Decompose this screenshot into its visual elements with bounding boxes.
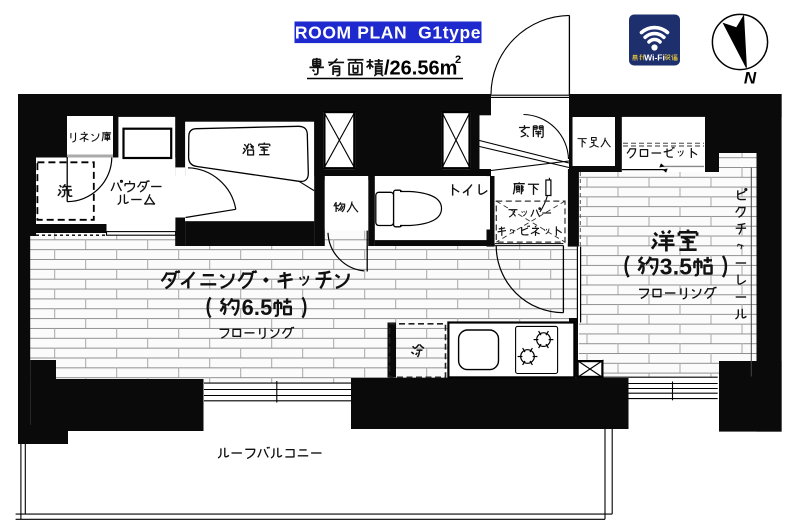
svg-text:5: 5	[679, 253, 692, 279]
svg-text:ROOM PLAN G1type: ROOM PLAN G1type	[295, 22, 481, 42]
svg-text:2: 2	[455, 54, 461, 66]
svg-text:6: 6	[242, 295, 254, 320]
svg-text:N: N	[744, 69, 757, 88]
svg-text:3: 3	[660, 253, 673, 279]
svg-text:Wi-Fi: Wi-Fi	[644, 52, 665, 62]
svg-text:5: 5	[260, 295, 272, 320]
svg-text:.: .	[673, 253, 679, 279]
svg-text:.: .	[254, 295, 260, 320]
svg-text:/26.56m: /26.56m	[384, 58, 457, 80]
